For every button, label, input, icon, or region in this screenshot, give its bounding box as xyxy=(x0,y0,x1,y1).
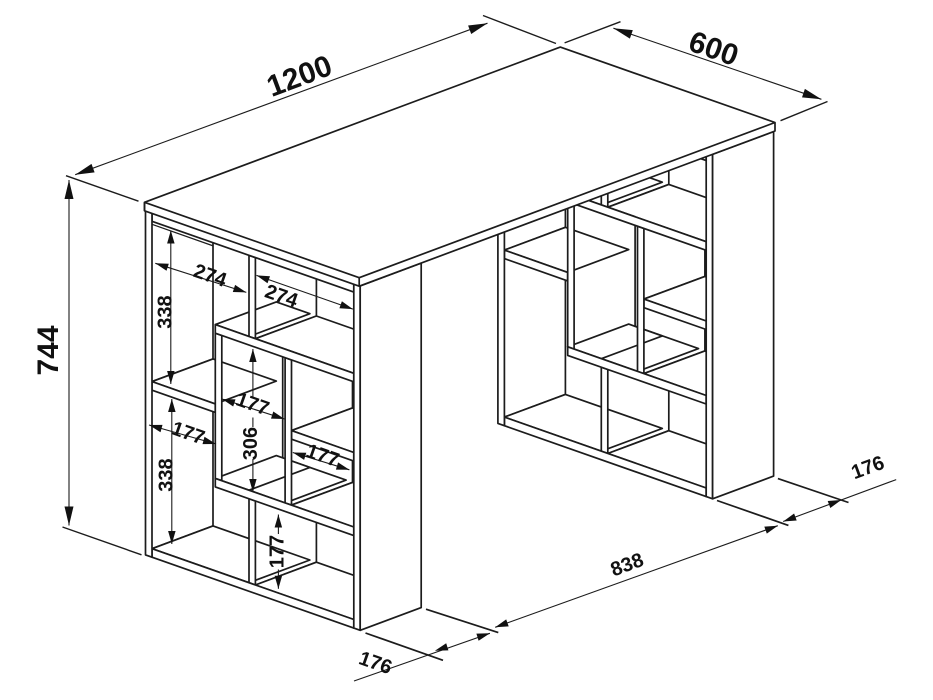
svg-text:177: 177 xyxy=(267,535,289,568)
svg-text:306: 306 xyxy=(240,427,262,460)
svg-text:338: 338 xyxy=(155,295,177,328)
svg-text:744: 744 xyxy=(32,325,65,375)
svg-text:338: 338 xyxy=(156,458,178,491)
